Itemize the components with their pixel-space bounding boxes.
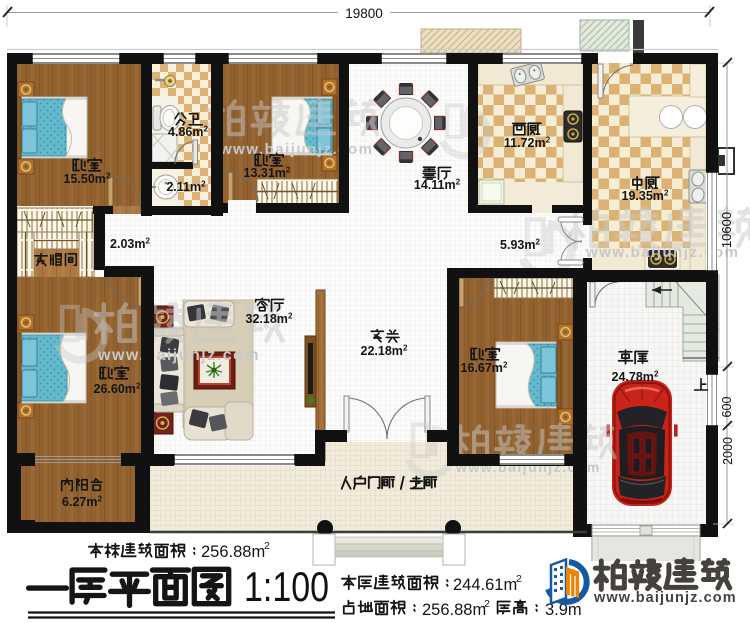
svg-text:256.88m: 256.88m (422, 601, 486, 619)
svg-text:26.60m2: 26.60m2 (94, 382, 141, 396)
svg-text:11.72m2: 11.72m2 (504, 136, 551, 150)
svg-text:19.35m2: 19.35m2 (622, 189, 669, 203)
svg-text:24.78m2: 24.78m2 (612, 370, 659, 384)
svg-text:22.18m2: 22.18m2 (361, 344, 408, 358)
svg-text:www.baijunjz.com: www.baijunjz.com (97, 347, 260, 364)
svg-text:2: 2 (516, 573, 522, 585)
svg-text:2: 2 (264, 540, 270, 552)
svg-text:256.88m: 256.88m (201, 543, 265, 561)
svg-text:13.31m2: 13.31m2 (244, 166, 291, 180)
svg-text:19800: 19800 (345, 6, 383, 21)
svg-text:16.67m2: 16.67m2 (461, 361, 508, 375)
svg-text:14.11m2: 14.11m2 (414, 178, 461, 192)
svg-text:5.93m2: 5.93m2 (500, 238, 540, 252)
svg-text:www.baijunjz.com: www.baijunjz.com (219, 141, 373, 158)
svg-text:244.61m: 244.61m (453, 576, 517, 594)
svg-text:www.baijunjz.com: www.baijunjz.com (593, 590, 737, 606)
svg-text:32.18m2: 32.18m2 (246, 312, 293, 326)
svg-text:10600: 10600 (719, 212, 734, 248)
svg-text:2.11m2: 2.11m2 (166, 180, 206, 194)
svg-text:4.86m2: 4.86m2 (168, 125, 208, 139)
svg-text:6.27m2: 6.27m2 (62, 495, 102, 509)
svg-text:1:100: 1:100 (244, 563, 329, 610)
svg-text:600: 600 (720, 397, 734, 418)
svg-text:15.50m2: 15.50m2 (64, 172, 111, 186)
svg-text:2000: 2000 (721, 437, 735, 465)
svg-text:2: 2 (484, 598, 490, 610)
svg-text:2.03m2: 2.03m2 (110, 237, 150, 251)
